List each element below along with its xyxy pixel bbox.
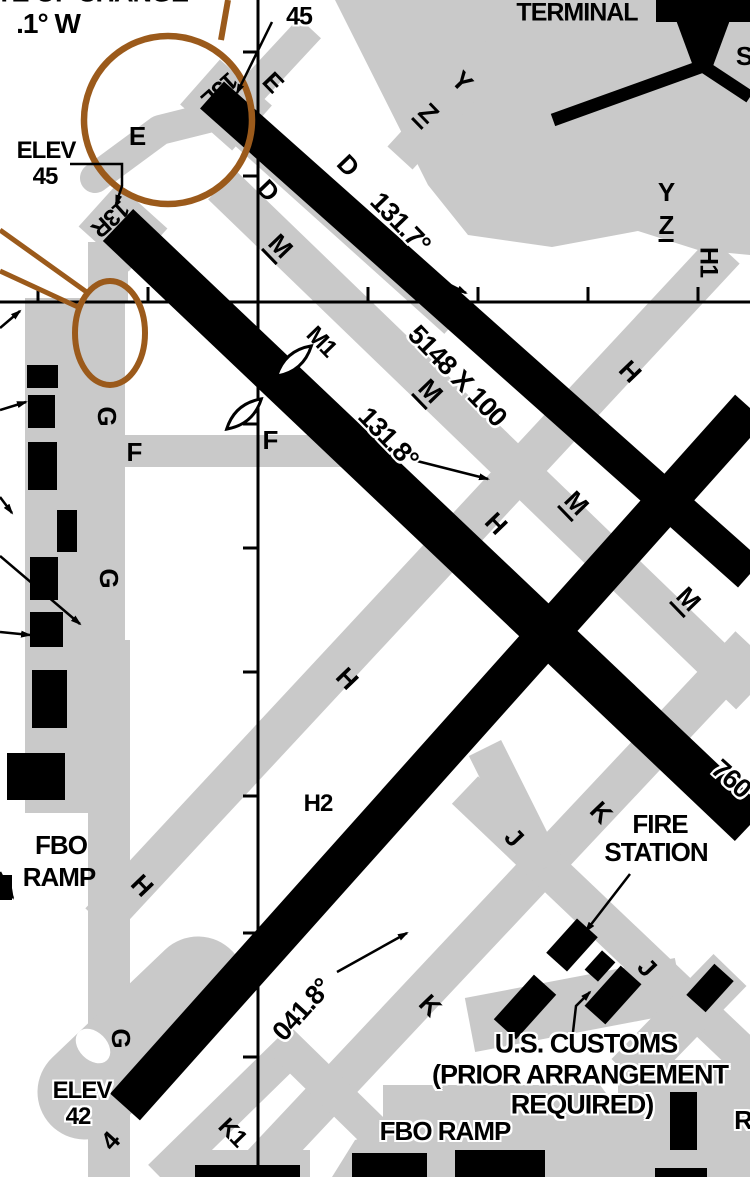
highlight-leader (0, 230, 88, 293)
map-label-fire: FIRE (632, 811, 687, 837)
map-label-h1: H1 (696, 247, 721, 277)
map-label-u-s-customs: U.S. CUSTOMS (495, 1031, 678, 1058)
map-label-g: G (108, 1028, 134, 1047)
building (57, 510, 77, 552)
building (32, 670, 67, 728)
map-label-fbo: FBO (35, 832, 87, 858)
building-arrow (0, 402, 26, 410)
map-label-te-of-change: TE OF CHANGE (0, 0, 188, 7)
building (352, 1153, 427, 1177)
taxiway-network (25, 0, 750, 1177)
building (28, 442, 57, 490)
map-label-g: G (96, 568, 122, 587)
map-label-z: Z (659, 212, 674, 242)
map-label-prior-arrangement: (PRIOR ARRANGEMENT (432, 1062, 728, 1089)
map-label-ramp: RAMP (23, 864, 96, 890)
map-label-45: 45 (33, 165, 58, 189)
airport-diagram-shapes (0, 0, 750, 1177)
building (7, 753, 65, 800)
map-label-fbo-ramp: FBO RAMP (380, 1118, 511, 1144)
map-label-y: Y (658, 179, 674, 205)
taxiway-f-band (120, 435, 345, 467)
map-label-f: F (127, 439, 142, 465)
building (0, 875, 12, 900)
building-arrow (0, 311, 20, 328)
building (30, 612, 63, 647)
airport-diagram: TE OF CHANGE.1° WELEV45ELEV45ELEV42TERMI… (0, 0, 750, 1177)
map-label-h2: H2 (304, 792, 333, 816)
map-label-station: STATION (604, 839, 707, 865)
map-label-1-w: .1° W (16, 10, 80, 38)
building (28, 395, 55, 428)
building (455, 1150, 545, 1177)
heading-041-8-arrow (337, 933, 407, 972)
map-label-e: E (129, 123, 145, 149)
map-label-g: G (94, 406, 120, 425)
map-label-required: REQUIRED) (511, 1092, 654, 1119)
building (670, 1092, 697, 1150)
map-label-elev: ELEV (17, 139, 76, 163)
building (195, 1165, 300, 1177)
building (655, 1168, 707, 1177)
building-arrow (0, 497, 12, 513)
map-label-s: S (736, 43, 750, 69)
map-label-f: F (263, 427, 278, 453)
map-label-45: 45 (286, 5, 312, 30)
map-label-r: R (734, 1107, 750, 1133)
building (27, 365, 58, 388)
highlight-leader (221, 0, 228, 40)
terminal-building (656, 0, 750, 22)
map-label-terminal: TERMINAL (516, 1, 637, 26)
map-label-42: 42 (66, 1105, 91, 1129)
map-label-elev: ELEV (53, 1079, 112, 1103)
heading-131-8-arrow (413, 460, 488, 479)
